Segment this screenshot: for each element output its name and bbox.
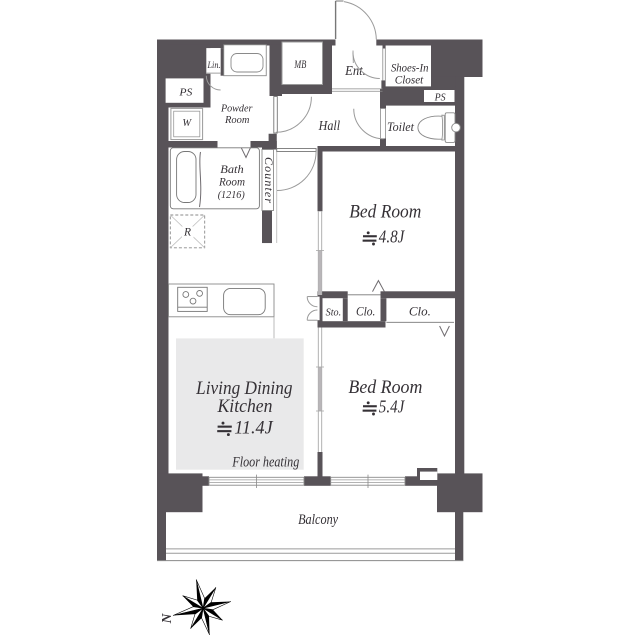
svg-text:4.8J: 4.8J — [379, 227, 405, 247]
svg-text:11.4J: 11.4J — [234, 418, 273, 438]
svg-text:Toilet: Toilet — [387, 119, 414, 134]
svg-text:Hall: Hall — [318, 118, 341, 133]
svg-text:PS: PS — [178, 87, 193, 98]
svg-text:Room: Room — [218, 176, 245, 188]
svg-text:Counter: Counter — [262, 157, 276, 203]
svg-text:Shoes-In: Shoes-In — [391, 63, 429, 75]
svg-text:N: N — [159, 612, 174, 624]
svg-text:Clo.: Clo. — [356, 304, 376, 318]
svg-text:R: R — [183, 227, 191, 239]
svg-text:Sto.: Sto. — [326, 306, 342, 318]
svg-text:Floor heating: Floor heating — [231, 454, 299, 470]
svg-text:MB: MB — [294, 59, 307, 71]
svg-text:Clo.: Clo. — [409, 304, 431, 319]
svg-text:Lin.: Lin. — [207, 60, 221, 70]
svg-text:Living Dining: Living Dining — [195, 379, 292, 399]
svg-text:Bath: Bath — [220, 164, 244, 176]
svg-text:Bed Room: Bed Room — [349, 202, 421, 223]
svg-text:Balcony: Balcony — [298, 512, 339, 528]
svg-text:Room: Room — [224, 114, 249, 126]
svg-text:Bed Room: Bed Room — [348, 377, 422, 398]
svg-text:5.4J: 5.4J — [379, 397, 405, 417]
svg-text:W: W — [182, 118, 192, 129]
svg-text:Closet: Closet — [395, 75, 424, 87]
svg-text:Kitchen: Kitchen — [217, 397, 273, 417]
svg-text:Ent.: Ent. — [344, 63, 366, 78]
svg-text:PS: PS — [434, 93, 447, 104]
svg-text:(1216): (1216) — [218, 189, 245, 201]
svg-text:Powder: Powder — [220, 103, 253, 115]
